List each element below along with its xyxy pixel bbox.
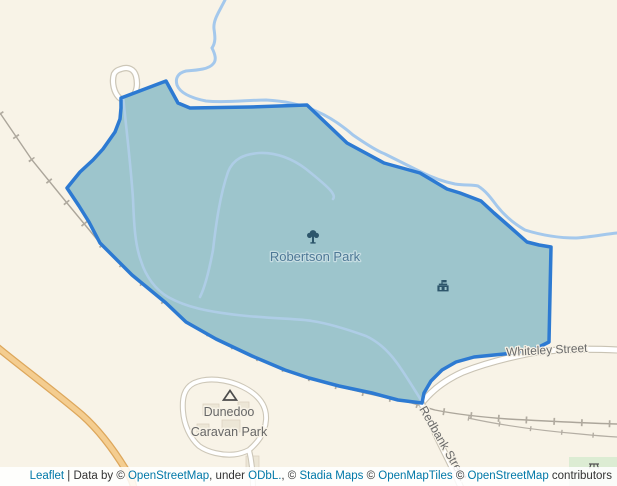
attribution-text: © <box>453 470 468 482</box>
openstreetmap-link[interactable]: OpenStreetMap <box>468 470 549 482</box>
odbl-link[interactable]: ODbL. <box>248 470 281 482</box>
openmaptiles-link[interactable]: OpenMapTiles <box>378 470 452 482</box>
leaflet-link[interactable]: Leaflet <box>30 470 65 482</box>
caravan-park-label-line2: Caravan Park <box>191 425 268 439</box>
caravan-park-label-line1: Dunedoo <box>204 405 255 419</box>
park-label: Robertson Park <box>270 249 361 264</box>
attribution-text: | Data by © <box>64 470 128 482</box>
openstreetmap-link[interactable]: OpenStreetMap <box>128 470 209 482</box>
attribution-text: , © <box>281 470 299 482</box>
attribution-bar: Leaflet | Data by © OpenStreetMap, under… <box>0 467 617 486</box>
leaflet-map[interactable]: Robertson Park Whiteley Street Redbank S… <box>0 0 617 486</box>
attribution-text: © <box>363 470 378 482</box>
attribution-text: , under <box>209 470 248 482</box>
attribution-text: contributors <box>549 470 612 482</box>
stadia-maps-link[interactable]: Stadia Maps <box>299 470 363 482</box>
